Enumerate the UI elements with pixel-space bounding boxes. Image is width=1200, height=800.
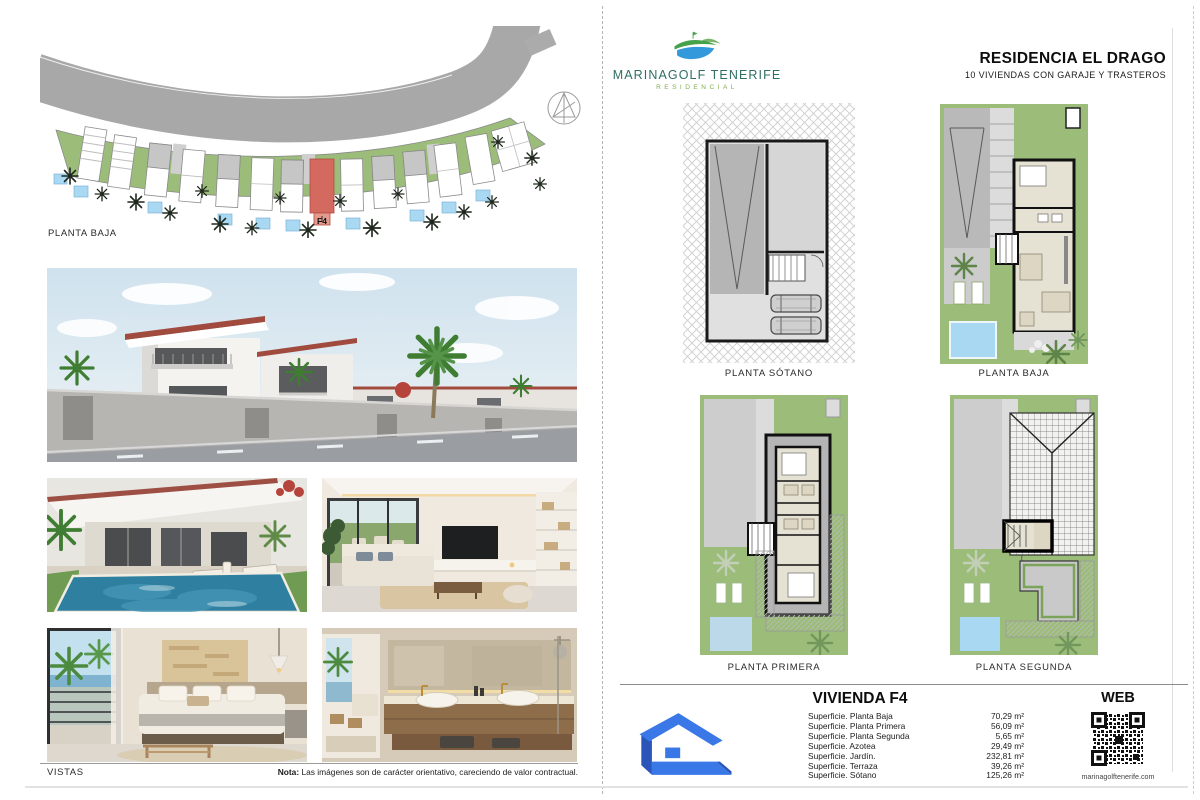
center-page-divider (602, 6, 603, 794)
floor-plan-segunda-label: PLANTA SEGUNDA (950, 662, 1098, 673)
floor-plan-sotano-label: PLANTA SÓTANO (683, 368, 855, 379)
website-url: marinagolftenerife.com (1058, 772, 1178, 781)
brand-name: MARINAGOLF TENERIFE (612, 68, 782, 82)
street-render-photo (47, 268, 577, 462)
bathroom-photo (322, 628, 577, 762)
right-trim-line (1193, 6, 1194, 794)
brochure-sheet: F4 PLANTA BAJA (0, 0, 1200, 800)
pool-photo (47, 478, 307, 612)
brand-subtitle: RESIDENCIAL (612, 84, 782, 91)
site-plan-label: PLANTA BAJA (48, 228, 138, 239)
compass-icon (548, 92, 580, 124)
road (40, 26, 518, 119)
floor-plan-primera-label: PLANTA PRIMERA (700, 662, 848, 673)
floor-plan-baja (940, 104, 1088, 364)
floor-plan-sotano (683, 103, 855, 363)
bedroom-photo (47, 628, 307, 762)
floor-plan-baja-label: PLANTA BAJA (940, 368, 1088, 379)
unit-title: VIVIENDA F4 (795, 690, 925, 708)
unit-f4-label: F4 (305, 216, 339, 226)
info-panel-rule (620, 684, 1188, 685)
floor-plan-primera (700, 395, 848, 655)
nota-text: Nota: Las imágenes son de carácter orien… (230, 767, 578, 777)
qr-code (1089, 710, 1147, 768)
living-room-photo (322, 478, 577, 612)
house-logo-icon (628, 706, 743, 782)
site-plan (40, 26, 600, 238)
floor-plan-segunda (950, 395, 1098, 655)
left-footer-rule (40, 763, 578, 764)
brand-logo-icon (663, 28, 727, 66)
right-page-edge (1172, 28, 1173, 772)
nota-bold: Nota: (278, 767, 299, 777)
surface-table: Superficie. Planta Baja70,29 m² Superfic… (808, 712, 1024, 781)
web-label: WEB (1070, 690, 1166, 706)
vistas-label: VISTAS (47, 767, 84, 778)
page-title: RESIDENCIA EL DRAGO (900, 50, 1166, 68)
table-row: Superficie. Sótano125,26 m² (808, 771, 1024, 781)
bottom-edge-line (25, 786, 1188, 788)
page-subtitle: 10 VIVIENDAS CON GARAJE Y TRASTEROS (900, 70, 1166, 80)
